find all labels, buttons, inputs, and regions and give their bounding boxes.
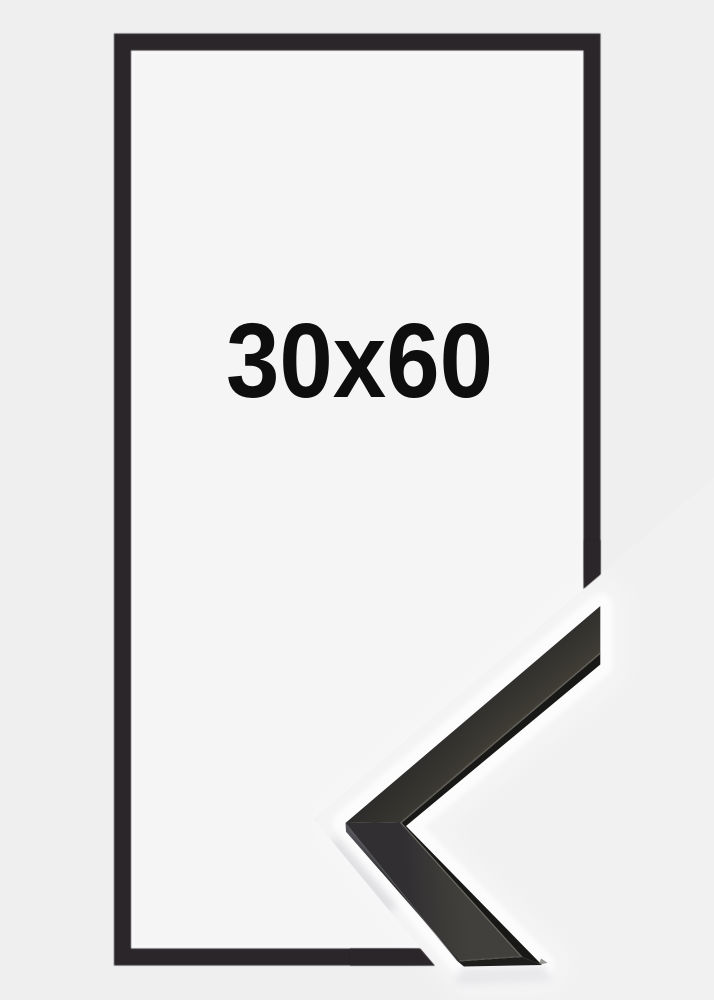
svg-text:30x60: 30x60	[226, 302, 493, 420]
